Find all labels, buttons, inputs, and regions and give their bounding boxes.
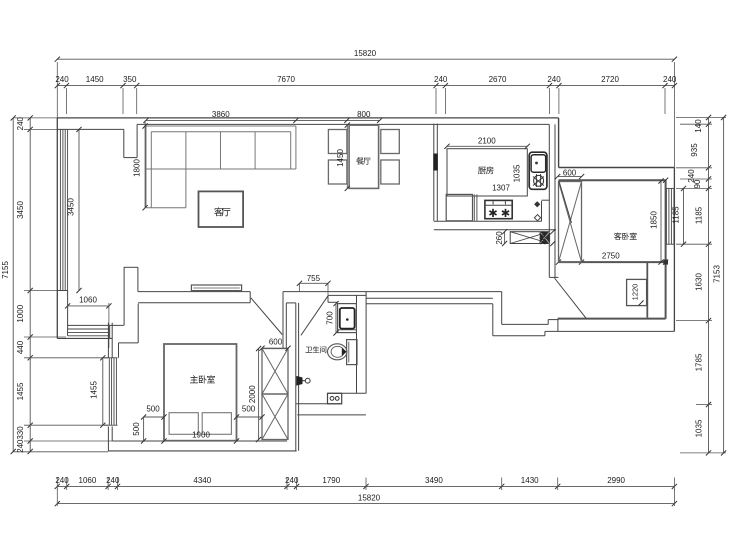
svg-text:260: 260 <box>495 231 504 245</box>
svg-text:3860: 3860 <box>212 110 230 119</box>
svg-text:240: 240 <box>55 476 69 485</box>
svg-text:2670: 2670 <box>489 75 507 84</box>
svg-text:1035: 1035 <box>695 419 704 437</box>
svg-text:1455: 1455 <box>90 381 99 399</box>
svg-text:2000: 2000 <box>248 385 257 403</box>
svg-text:1800: 1800 <box>133 159 142 177</box>
svg-text:1220: 1220 <box>631 284 640 301</box>
svg-text:1455: 1455 <box>16 382 25 400</box>
svg-text:1450: 1450 <box>86 75 104 84</box>
svg-text:1630: 1630 <box>695 273 704 291</box>
svg-text:350: 350 <box>123 75 137 84</box>
svg-text:500: 500 <box>146 405 160 414</box>
svg-text:7670: 7670 <box>277 75 295 84</box>
svg-text:500: 500 <box>242 405 256 414</box>
svg-text:240: 240 <box>106 476 120 485</box>
svg-text:1900: 1900 <box>192 430 210 439</box>
svg-text:240: 240 <box>547 75 561 84</box>
svg-text:240: 240 <box>663 75 677 84</box>
svg-text:240: 240 <box>16 116 25 130</box>
svg-text:240: 240 <box>55 75 69 84</box>
svg-text:1185: 1185 <box>695 206 704 224</box>
svg-text:1035: 1035 <box>513 164 522 182</box>
svg-text:240: 240 <box>16 439 25 453</box>
svg-text:3490: 3490 <box>425 476 443 485</box>
svg-text:935: 935 <box>690 143 699 157</box>
svg-text:7155: 7155 <box>1 261 10 279</box>
svg-text:1060: 1060 <box>79 476 97 485</box>
svg-text:15820: 15820 <box>354 49 377 58</box>
svg-text:7153: 7153 <box>713 265 722 283</box>
svg-text:1185: 1185 <box>672 206 681 224</box>
svg-text:1060: 1060 <box>79 296 97 305</box>
svg-text:240: 240 <box>285 476 299 485</box>
svg-text:1785: 1785 <box>695 353 704 371</box>
svg-text:90: 90 <box>693 179 702 188</box>
svg-text:600: 600 <box>563 169 577 178</box>
svg-text:330: 330 <box>16 426 25 440</box>
svg-text:15820: 15820 <box>358 494 381 503</box>
svg-text:260: 260 <box>539 231 548 245</box>
svg-text:1850: 1850 <box>650 211 659 229</box>
svg-text:240: 240 <box>434 75 448 84</box>
svg-text:140: 140 <box>694 119 703 133</box>
svg-text:2990: 2990 <box>607 476 625 485</box>
svg-text:1000: 1000 <box>16 304 25 322</box>
svg-text:700: 700 <box>326 311 335 325</box>
svg-text:2720: 2720 <box>601 75 619 84</box>
svg-text:3450: 3450 <box>67 198 76 216</box>
svg-text:800: 800 <box>357 110 371 119</box>
svg-text:2750: 2750 <box>602 252 620 261</box>
svg-text:4340: 4340 <box>193 476 211 485</box>
svg-text:600: 600 <box>269 338 283 347</box>
svg-text:2100: 2100 <box>478 137 496 146</box>
svg-text:500: 500 <box>132 422 141 436</box>
svg-text:755: 755 <box>307 274 321 283</box>
svg-text:1790: 1790 <box>322 476 340 485</box>
svg-text:440: 440 <box>16 340 25 354</box>
svg-text:1450: 1450 <box>336 149 345 167</box>
svg-text:1307: 1307 <box>492 184 510 193</box>
svg-text:1430: 1430 <box>521 476 539 485</box>
svg-text:3450: 3450 <box>16 201 25 219</box>
